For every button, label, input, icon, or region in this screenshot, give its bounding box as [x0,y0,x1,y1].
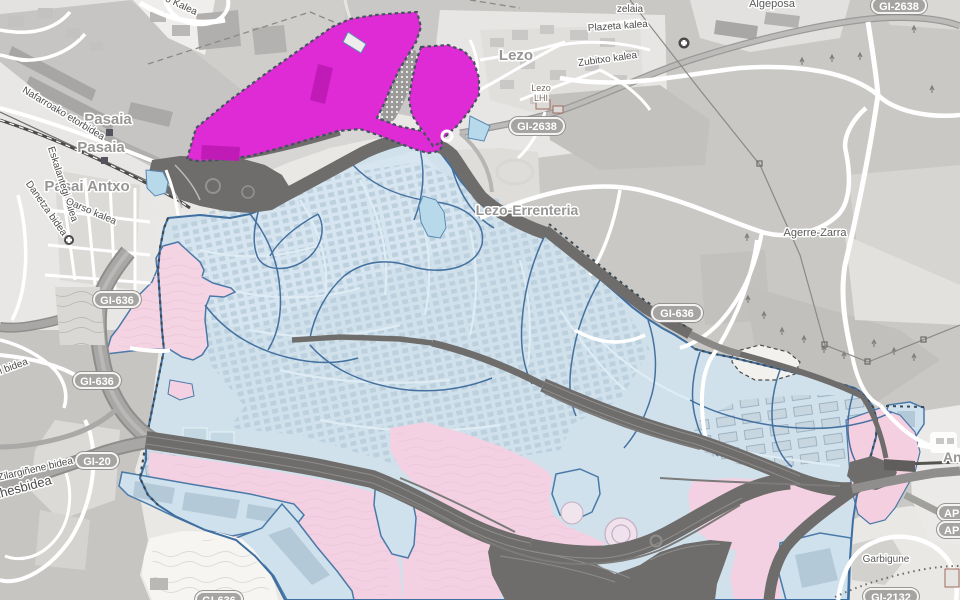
svg-text:Garbigune: Garbigune [863,554,910,565]
svg-text:GI-636: GI-636 [100,295,134,307]
svg-text:GI-636: GI-636 [202,595,236,600]
svg-text:GI-2638: GI-2638 [879,1,919,13]
svg-text:An: An [943,449,960,465]
svg-text:LHI: LHI [534,93,548,103]
svg-text:AP: AP [944,525,959,537]
svg-text:AP: AP [944,508,959,520]
svg-text:Algeposa: Algeposa [749,0,796,10]
svg-text:Lezo: Lezo [499,47,533,64]
svg-text:zelaia: zelaia [617,4,644,15]
svg-text:GI-636: GI-636 [80,376,114,388]
svg-text:Lezo-Errenteria: Lezo-Errenteria [476,202,579,218]
svg-text:Agerre-Zarra: Agerre-Zarra [784,227,848,239]
svg-text:GI-20: GI-20 [83,456,111,468]
svg-text:GI-636: GI-636 [660,308,694,320]
svg-text:GI-2638: GI-2638 [517,121,557,133]
svg-text:Lezo: Lezo [531,83,551,93]
svg-text:GI-2132: GI-2132 [871,592,911,600]
